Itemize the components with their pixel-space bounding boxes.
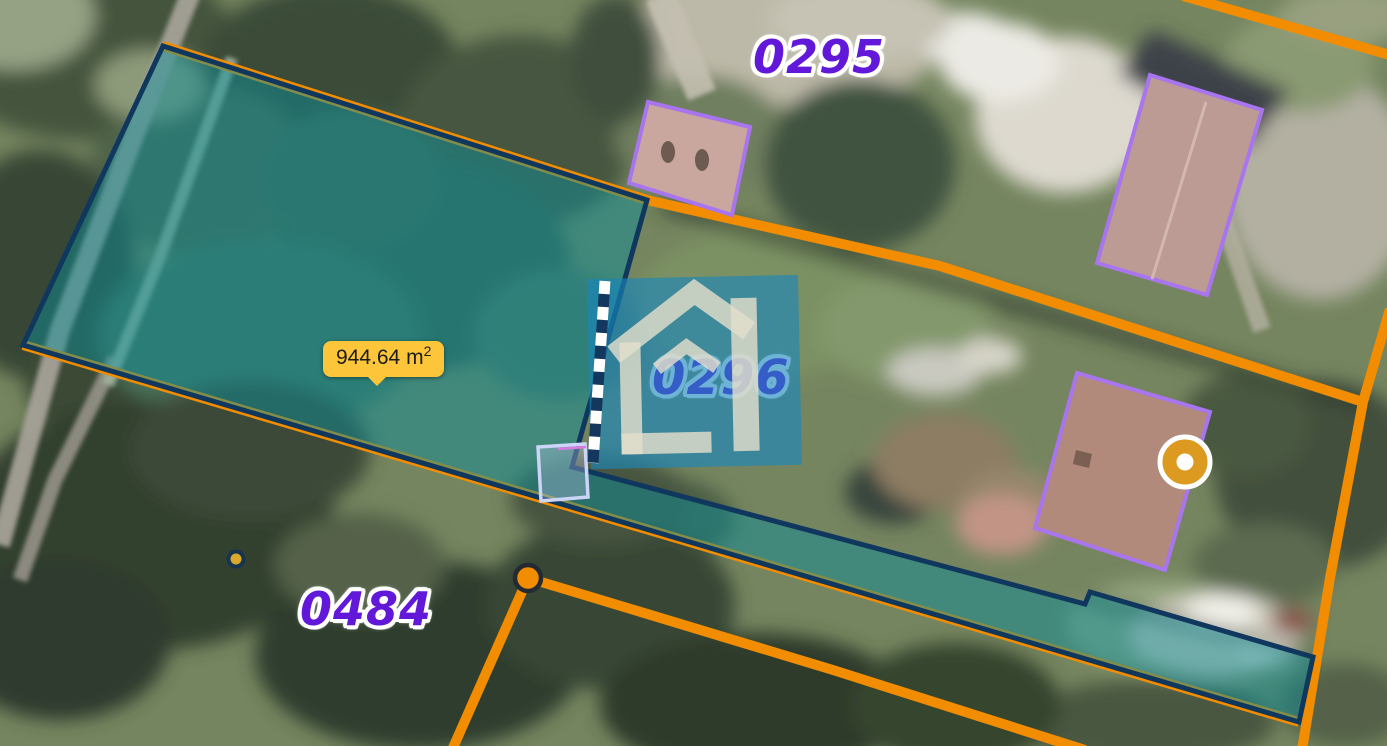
markers-layer xyxy=(0,0,1387,746)
area-value: 944.64 m xyxy=(336,346,424,369)
map-canvas[interactable]: 0295 0484 0296 944.64 m2 xyxy=(0,0,1387,746)
position-marker[interactable] xyxy=(1160,437,1210,487)
area-tooltip: 944.64 m2 xyxy=(323,341,444,377)
measure-dashed-segment xyxy=(593,281,605,463)
area-unit-exponent: 2 xyxy=(424,343,432,359)
position-marker-center xyxy=(1177,454,1194,471)
tooltip-tail xyxy=(367,376,387,386)
measure-vertex-dot[interactable] xyxy=(515,565,541,591)
